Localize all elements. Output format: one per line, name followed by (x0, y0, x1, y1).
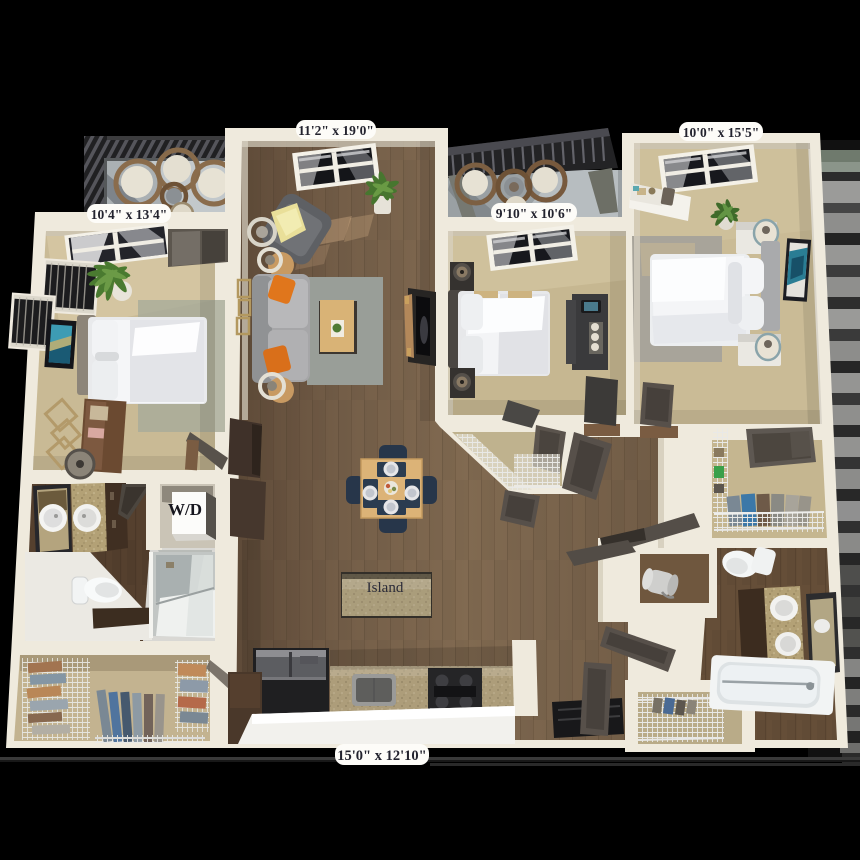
svg-text:W/D: W/D (168, 500, 202, 519)
svg-text:10'0" x 15'5": 10'0" x 15'5" (683, 125, 760, 140)
svg-text:11'2" x 19'0": 11'2" x 19'0" (298, 123, 374, 138)
svg-text:15'0" x 12'10": 15'0" x 12'10" (337, 748, 426, 764)
svg-text:9'10" x 10'6": 9'10" x 10'6" (496, 206, 573, 221)
svg-text:Island: Island (367, 580, 404, 596)
svg-text:10'4" x 13'4": 10'4" x 13'4" (91, 207, 168, 222)
